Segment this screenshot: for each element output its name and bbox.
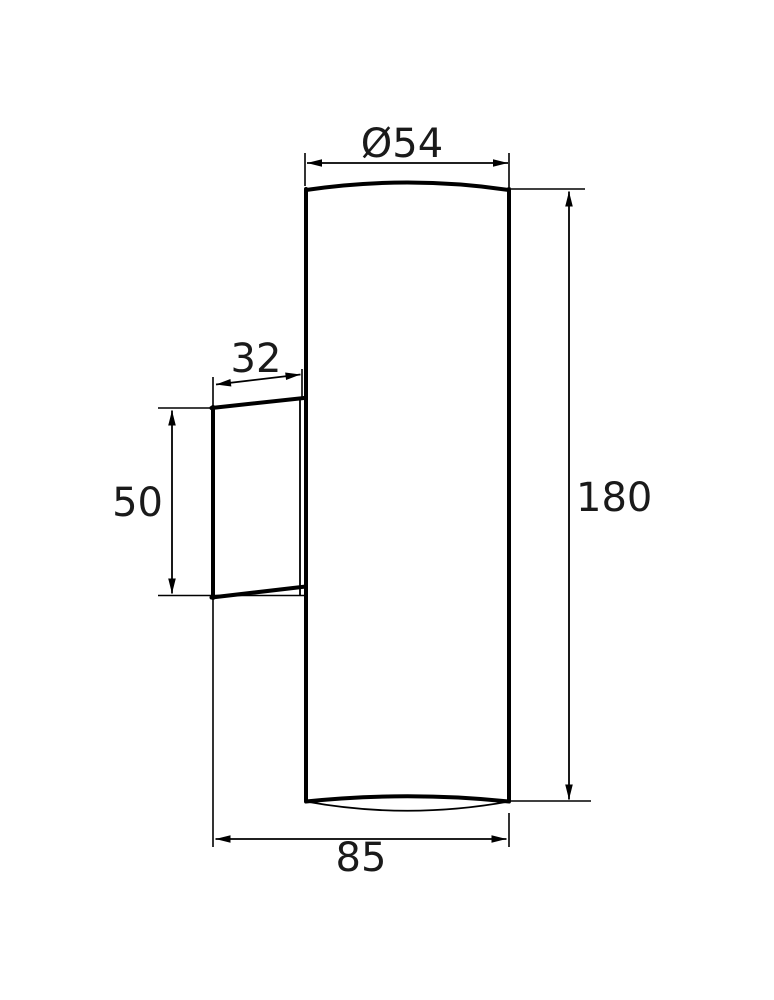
dim-height-label: 180 — [576, 475, 652, 521]
cylinder-bottom-rim-near — [306, 802, 509, 811]
dim-bracket-height-label: 50 — [112, 480, 163, 526]
technical-drawing-canvas: Ø54 180 32 50 85 — [0, 0, 774, 1000]
dim-depth: 85 — [213, 599, 509, 881]
dim-bracket-width: 32 — [213, 336, 302, 406]
bracket-top-edge — [212, 398, 305, 408]
cylinder-bottom-rim-far — [306, 796, 509, 801]
dim-diameter: Ø54 — [305, 121, 509, 187]
cylinder-top-arc — [306, 183, 509, 191]
dim-bracket-width-label: 32 — [231, 336, 282, 382]
dim-height: 180 — [511, 189, 652, 801]
dim-diameter-label: Ø54 — [361, 121, 443, 167]
dim-depth-label: 85 — [336, 835, 387, 881]
cylinder-body — [306, 183, 509, 811]
dim-bracket-height: 50 — [112, 408, 307, 596]
luminaire-dimension-drawing: Ø54 180 32 50 85 — [0, 0, 774, 1000]
mounting-bracket — [212, 398, 307, 598]
